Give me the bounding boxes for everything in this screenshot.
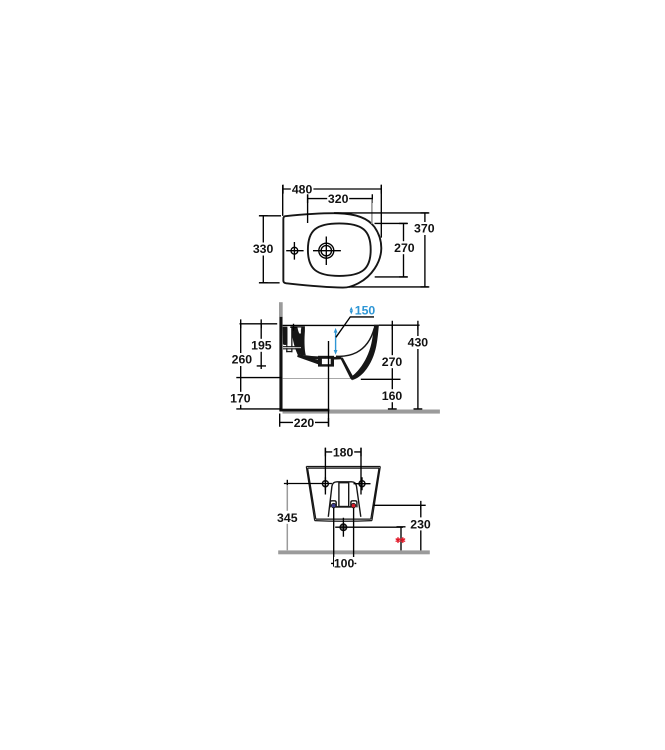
svg-text:100: 100 — [334, 556, 355, 570]
svg-text:330: 330 — [253, 242, 274, 256]
svg-text:180: 180 — [333, 445, 354, 459]
svg-text:160: 160 — [382, 389, 403, 403]
svg-text:370: 370 — [414, 222, 435, 236]
svg-text:220: 220 — [294, 416, 315, 430]
svg-text:260: 260 — [232, 353, 253, 367]
svg-text:345: 345 — [277, 511, 298, 525]
svg-text:195: 195 — [251, 339, 272, 353]
svg-text:480: 480 — [292, 182, 313, 196]
svg-text:150: 150 — [355, 303, 376, 317]
svg-text:270: 270 — [394, 241, 415, 255]
svg-text:430: 430 — [408, 336, 429, 350]
svg-text:170: 170 — [230, 392, 251, 406]
svg-text:320: 320 — [328, 192, 349, 206]
svg-text:270: 270 — [382, 355, 403, 369]
svg-text:230: 230 — [410, 518, 431, 532]
